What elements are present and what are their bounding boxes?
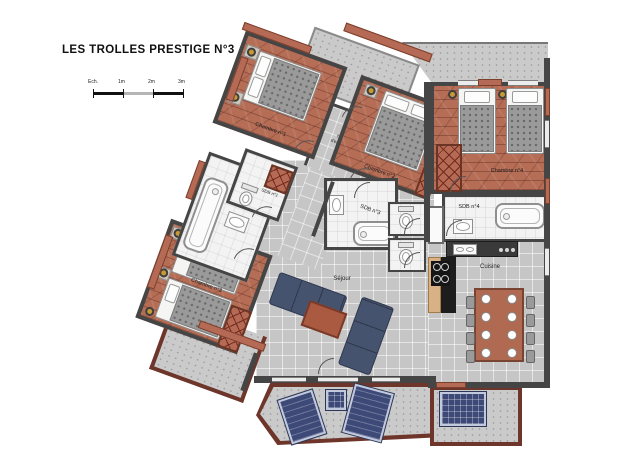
pillow: [464, 91, 490, 103]
exterior-concrete-area: [402, 42, 548, 84]
window: [508, 80, 538, 86]
chair: [466, 296, 475, 309]
chair: [526, 314, 535, 327]
scale-tick: [153, 89, 154, 98]
basin: [456, 247, 464, 252]
kitchen-counter-top: [446, 241, 518, 257]
plate: [507, 348, 517, 358]
terracotta-accent: [478, 79, 502, 86]
balcony-table: [326, 390, 346, 410]
drain: [503, 213, 510, 220]
basin: [332, 198, 341, 212]
window: [372, 377, 400, 382]
chair: [526, 350, 535, 363]
terracotta-accent: [545, 88, 550, 116]
hob-control: [505, 248, 509, 252]
room-chambre-4: Chambre n°4: [430, 82, 548, 194]
chair: [526, 332, 535, 345]
burner-icon: [433, 263, 441, 271]
scale-tick-label: 2m: [148, 79, 155, 85]
window: [272, 377, 306, 382]
window: [545, 248, 549, 276]
plate: [481, 312, 491, 322]
room-label: SDB n°3: [347, 199, 393, 221]
kitchen-sink: [453, 244, 477, 255]
scale-tick: [183, 89, 184, 98]
toilet-tank: [398, 206, 414, 212]
plan-title: LES TROLLES PRESTIGE N°3: [62, 44, 235, 56]
burner-icon: [441, 263, 449, 271]
scale-bar: Ech. 1m 2m 3m: [86, 76, 206, 104]
hob-control: [499, 248, 503, 252]
bathtub: [495, 203, 545, 229]
pillow: [512, 91, 538, 103]
scale-segment: [123, 92, 153, 95]
window: [545, 120, 549, 148]
toilet-tank: [398, 242, 414, 248]
scale-label: Ech.: [88, 79, 98, 85]
fridge-column: [428, 206, 444, 244]
plate: [507, 312, 517, 322]
scale-tick-label: 3m: [178, 79, 185, 85]
plate: [481, 330, 491, 340]
plate: [507, 294, 517, 304]
bedside-lamp-icon: [144, 306, 156, 318]
hot-tub: [440, 392, 486, 426]
bedside-lamp-icon: [448, 90, 457, 99]
washbasin: [329, 195, 344, 215]
scale-segment: [153, 92, 183, 95]
floor-plan: Chambre n°3 SDB n°2 SDB n°1 hall d'entré…: [0, 0, 640, 452]
scale-tick: [93, 89, 94, 98]
washbasin: [224, 211, 250, 234]
scale-tick-label: 1m: [118, 79, 125, 85]
hob-control: [511, 248, 515, 252]
chair: [466, 332, 475, 345]
chair: [466, 350, 475, 363]
terracotta-accent: [545, 178, 550, 204]
chair: [526, 296, 535, 309]
basin: [466, 247, 474, 252]
room-label: Chambre n°4: [472, 168, 542, 175]
room-label: Séjour: [322, 276, 362, 284]
plate: [481, 294, 491, 304]
mattress: [460, 105, 494, 152]
window: [318, 377, 358, 382]
room-label: Cuisine: [470, 264, 510, 272]
chair: [466, 314, 475, 327]
scale-segment: [93, 92, 123, 95]
scale-tick: [123, 89, 124, 98]
mattress: [508, 105, 542, 152]
plate: [507, 330, 517, 340]
burner-icon: [441, 275, 449, 283]
basin: [227, 215, 245, 230]
room-label: SDB n°4: [449, 204, 489, 211]
terracotta-accent: [436, 382, 466, 388]
burner-icon: [433, 275, 441, 283]
toilet-bowl: [241, 193, 251, 204]
wall: [424, 82, 430, 242]
plate: [481, 348, 491, 358]
stove: [431, 261, 450, 286]
drain: [360, 231, 367, 238]
